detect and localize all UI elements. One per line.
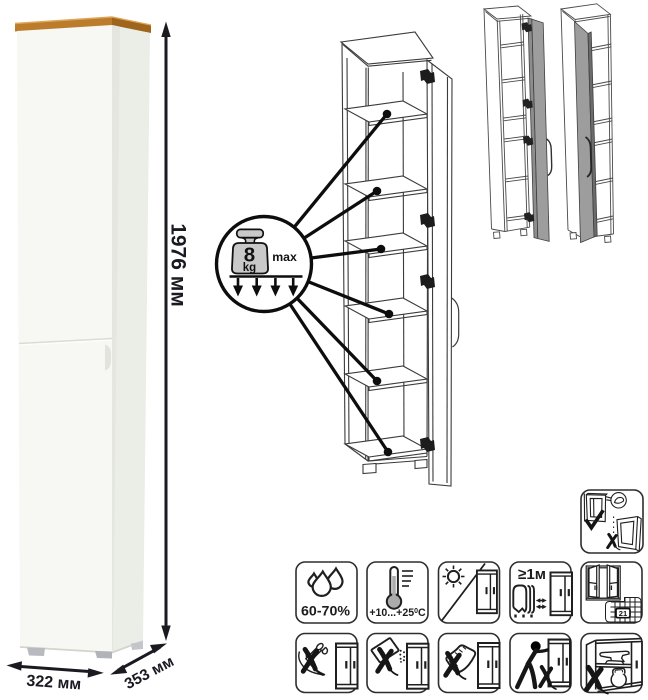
svg-text:kg: kg [243, 262, 256, 274]
svg-text:322 мм: 322 мм [26, 673, 82, 694]
svg-text:21: 21 [619, 609, 628, 618]
svg-text:60-70%: 60-70% [301, 604, 350, 620]
svg-text:353 мм: 353 мм [122, 653, 177, 693]
svg-text:+10...+250C: +10...+250C [369, 607, 426, 619]
svg-text:1976 мм: 1976 мм [167, 223, 190, 307]
svg-text:≥1м: ≥1м [518, 566, 546, 583]
svg-text:max: max [272, 250, 297, 264]
